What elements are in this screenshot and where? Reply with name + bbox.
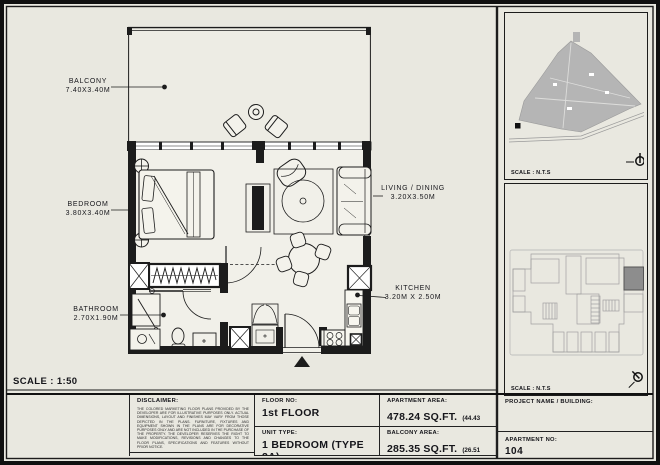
disclaimer-text: THE COLORED MARKETING FLOOR PLANS PROVID… <box>137 407 249 449</box>
cell-value: 285.35 SQ.FT. <box>387 443 457 455</box>
unit-type-cell: UNIT TYPE: 1 BEDROOM (TYPE 2A) <box>255 427 380 456</box>
north-arrow-icon <box>626 153 644 165</box>
balcony-label: BALCONY 7.40X3.40M <box>46 77 130 95</box>
cell-value: 104 <box>505 446 653 457</box>
entry-arrow-icon <box>294 356 310 367</box>
cell-value: 478.24 SQ.FT. <box>387 411 457 423</box>
title-block-right: PROJECT NAME / BUILDING: APARTMENT NO: 1… <box>497 393 653 461</box>
site-boundary <box>519 41 641 132</box>
key-plan <box>505 184 644 392</box>
location-marker <box>515 123 521 129</box>
main-scale-label: SCALE : 1:50 <box>13 376 77 387</box>
window-band <box>127 141 371 151</box>
project-name-cell: PROJECT NAME / BUILDING: <box>497 395 653 432</box>
key-plan-scale-label: SCALE : N.T.S <box>511 386 551 392</box>
bedroom-label: BEDROOM 3.80X3.40M <box>46 200 130 218</box>
drawing-sheet: BALCONY 7.40X3.40M BEDROOM 3.80X3.40M BA… <box>0 0 660 465</box>
kitchen-label: KITCHEN 3.20M X 2.50M <box>371 284 455 302</box>
north-arrow-icon <box>622 368 643 389</box>
room-name: BALCONY <box>46 77 130 86</box>
cell-label: DISCLAIMER: <box>137 398 249 404</box>
cell-label: APARTMENT AREA: <box>387 398 490 404</box>
site-map-scale-label: SCALE : N.T.S <box>511 170 551 176</box>
cell-value: 1 BEDROOM (TYPE 2A) <box>262 439 373 456</box>
room-name: BEDROOM <box>46 200 130 209</box>
balcony-area-cell: BALCONY AREA: 285.35 SQ.FT.(26.51 SQ.M.) <box>380 427 497 456</box>
cell-label: FLOOR NO: <box>262 398 373 404</box>
floor-plan <box>111 27 386 367</box>
cell-value: 1st FLOOR <box>262 407 373 419</box>
cell-label: UNIT TYPE: <box>262 430 373 436</box>
bathroom-label: BATHROOM 2.70X1.90M <box>54 305 138 323</box>
sofa <box>337 167 371 235</box>
cell-label: APARTMENT NO: <box>505 437 653 443</box>
highlighted-unit <box>624 267 644 290</box>
site-map <box>505 13 644 176</box>
info-table: FLOOR NO: 1st FLOOR APARTMENT AREA: 478.… <box>6 393 497 461</box>
bed <box>139 170 214 239</box>
living-dining-label: LIVING / DINING 3.20X3.50M <box>371 184 455 202</box>
floor-no-cell: FLOOR NO: 1st FLOOR <box>255 395 380 427</box>
apartment-area-cell: APARTMENT AREA: 478.24 SQ.FT.(44.43 SQ.M… <box>380 395 497 427</box>
apartment-no-cell: APARTMENT NO: 104 <box>497 433 653 460</box>
cell-label: BALCONY AREA: <box>387 430 490 436</box>
room-name: BATHROOM <box>54 305 138 314</box>
room-dims: 7.40X3.40M <box>46 86 130 95</box>
cell-label: TOTAL APARTMENT AREA: <box>130 452 255 456</box>
room-name: KITCHEN <box>371 284 455 293</box>
room-name: LIVING / DINING <box>371 184 455 193</box>
disclaimer-cell: DISCLAIMER: THE COLORED MARKETING FLOOR … <box>130 395 255 456</box>
site-map-panel: SCALE : N.T.S <box>504 12 648 180</box>
room-dims: 3.20X3.50M <box>371 193 455 202</box>
cell-label: PROJECT NAME / BUILDING: <box>505 399 653 405</box>
room-dims: 2.70X1.90M <box>54 314 138 323</box>
room-dims: 3.80X3.40M <box>46 209 130 218</box>
room-dims: 3.20M X 2.50M <box>371 293 455 302</box>
logo-cell <box>6 395 130 456</box>
vanity-sink <box>130 329 160 350</box>
key-plan-panel: SCALE : N.T.S <box>504 183 648 396</box>
